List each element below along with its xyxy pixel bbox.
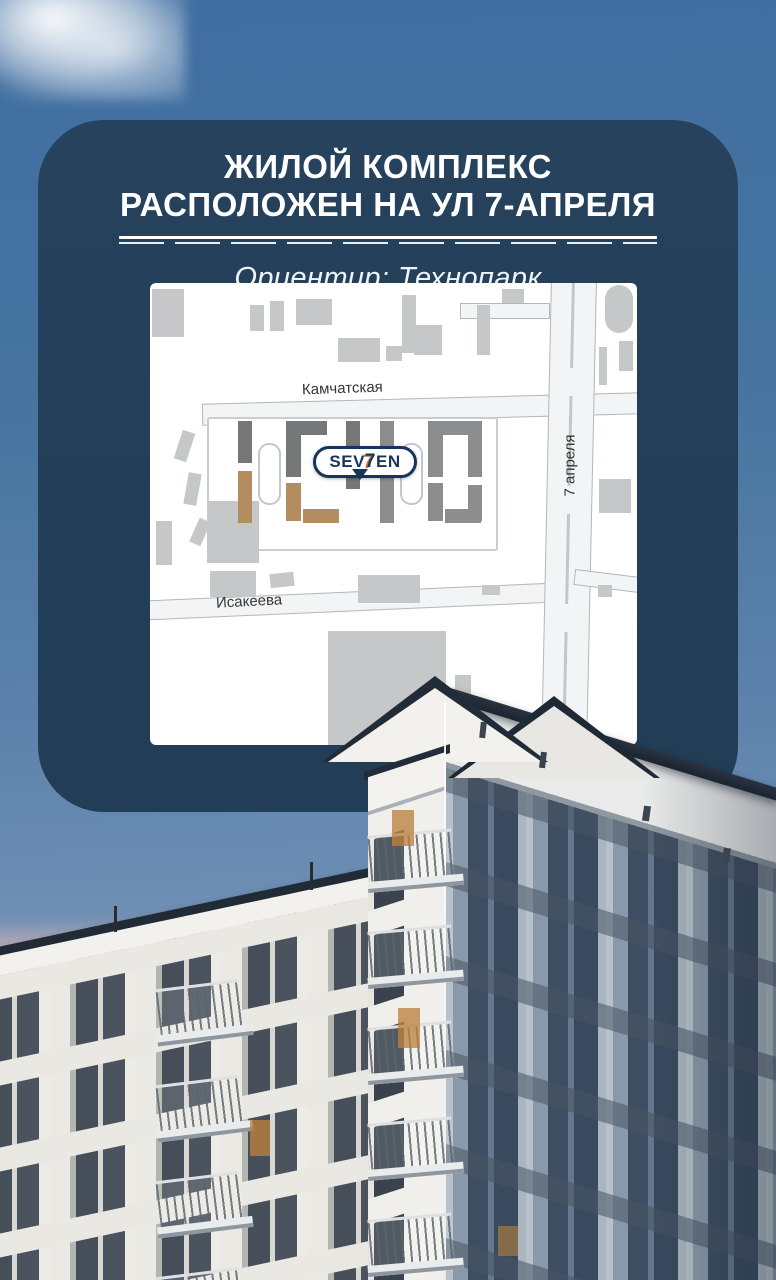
street-label-isakeeva: Исакеева — [216, 591, 283, 611]
seven-complex-building — [286, 483, 301, 521]
promo-poster: ЖИЛОЙ КОМПЛЕКС РАСПОЛОЖЕН НА УЛ 7-АПРЕЛЯ… — [0, 0, 776, 1280]
marker-text-7: 7 — [365, 451, 376, 473]
seven-complex-building — [303, 509, 339, 523]
marker-text-se: SE — [329, 452, 353, 472]
neighbor-building — [380, 471, 394, 523]
map-building — [152, 289, 184, 337]
map-building — [605, 285, 633, 333]
info-card: ЖИЛОЙ КОМПЛЕКС РАСПОЛОЖЕН НА УЛ 7-АПРЕЛЯ… — [38, 120, 738, 812]
map-building — [502, 289, 524, 303]
title-divider — [119, 236, 657, 245]
map-building — [455, 675, 471, 745]
marker-text-en: EN — [376, 452, 401, 472]
map-building — [183, 472, 201, 506]
map-building — [477, 305, 490, 355]
street-spur-top — [460, 303, 550, 319]
poster-title: ЖИЛОЙ КОМПЛЕКС РАСПОЛОЖЕН НА УЛ 7-АПРЕЛЯ — [68, 148, 708, 225]
map-building — [482, 585, 500, 595]
seven-complex-building — [286, 421, 301, 477]
map-building — [599, 479, 631, 513]
courtyard-outline — [258, 443, 281, 505]
seven-complex-building — [301, 421, 327, 435]
white-cloud — [0, 0, 185, 100]
map-building — [269, 572, 294, 588]
neighbor-building — [468, 421, 482, 477]
seven-complex-building — [238, 421, 252, 463]
map-building — [174, 430, 196, 463]
poster-title-line2: РАСПОЛОЖЕН НА УЛ 7-АПРЕЛЯ — [68, 186, 708, 224]
street-label-kamchatskaya: Камчатская — [302, 379, 383, 399]
marker-text-v: V — [353, 452, 365, 472]
poster-title-line1: ЖИЛОЙ КОМПЛЕКС — [68, 148, 708, 186]
street-label-7-aprelya: 7 апреля — [562, 416, 579, 516]
map-building — [250, 305, 264, 331]
neighbor-building — [468, 485, 482, 521]
map-building — [296, 299, 332, 325]
neighbor-building — [443, 421, 469, 435]
map-building — [599, 347, 607, 385]
map-building — [358, 575, 420, 603]
map-building — [156, 521, 172, 565]
map-building — [619, 341, 633, 371]
map-building — [386, 346, 402, 361]
map-building — [414, 325, 442, 355]
neighbor-building — [428, 483, 443, 521]
map-building — [338, 338, 380, 362]
location-map: Камчатская Исакеева 7 апреля SEV7EN — [150, 283, 637, 745]
pink-cloud — [0, 896, 610, 1011]
seven-map-marker: SEV7EN — [313, 446, 417, 478]
map-building — [598, 585, 612, 597]
map-building — [270, 301, 284, 331]
neighbor-building — [428, 421, 443, 477]
street-stub-bottom — [488, 721, 552, 733]
seven-complex-building — [238, 471, 252, 523]
map-building — [328, 631, 446, 745]
